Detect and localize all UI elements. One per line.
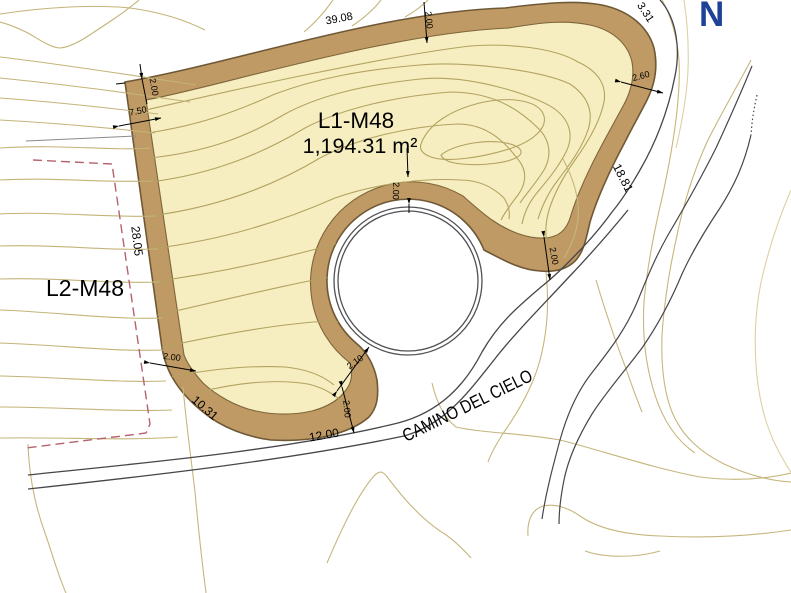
- svg-text:L2-M48: L2-M48: [46, 275, 124, 301]
- svg-text:L1-M48: L1-M48: [318, 108, 394, 133]
- svg-text:2.00: 2.00: [163, 351, 182, 363]
- svg-text:1,194.31 m²: 1,194.31 m²: [303, 134, 418, 158]
- svg-text:2.00: 2.00: [391, 182, 402, 200]
- svg-text:N: N: [699, 0, 724, 34]
- svg-text:2.00: 2.00: [341, 400, 352, 418]
- svg-text:2.00: 2.00: [423, 11, 435, 29]
